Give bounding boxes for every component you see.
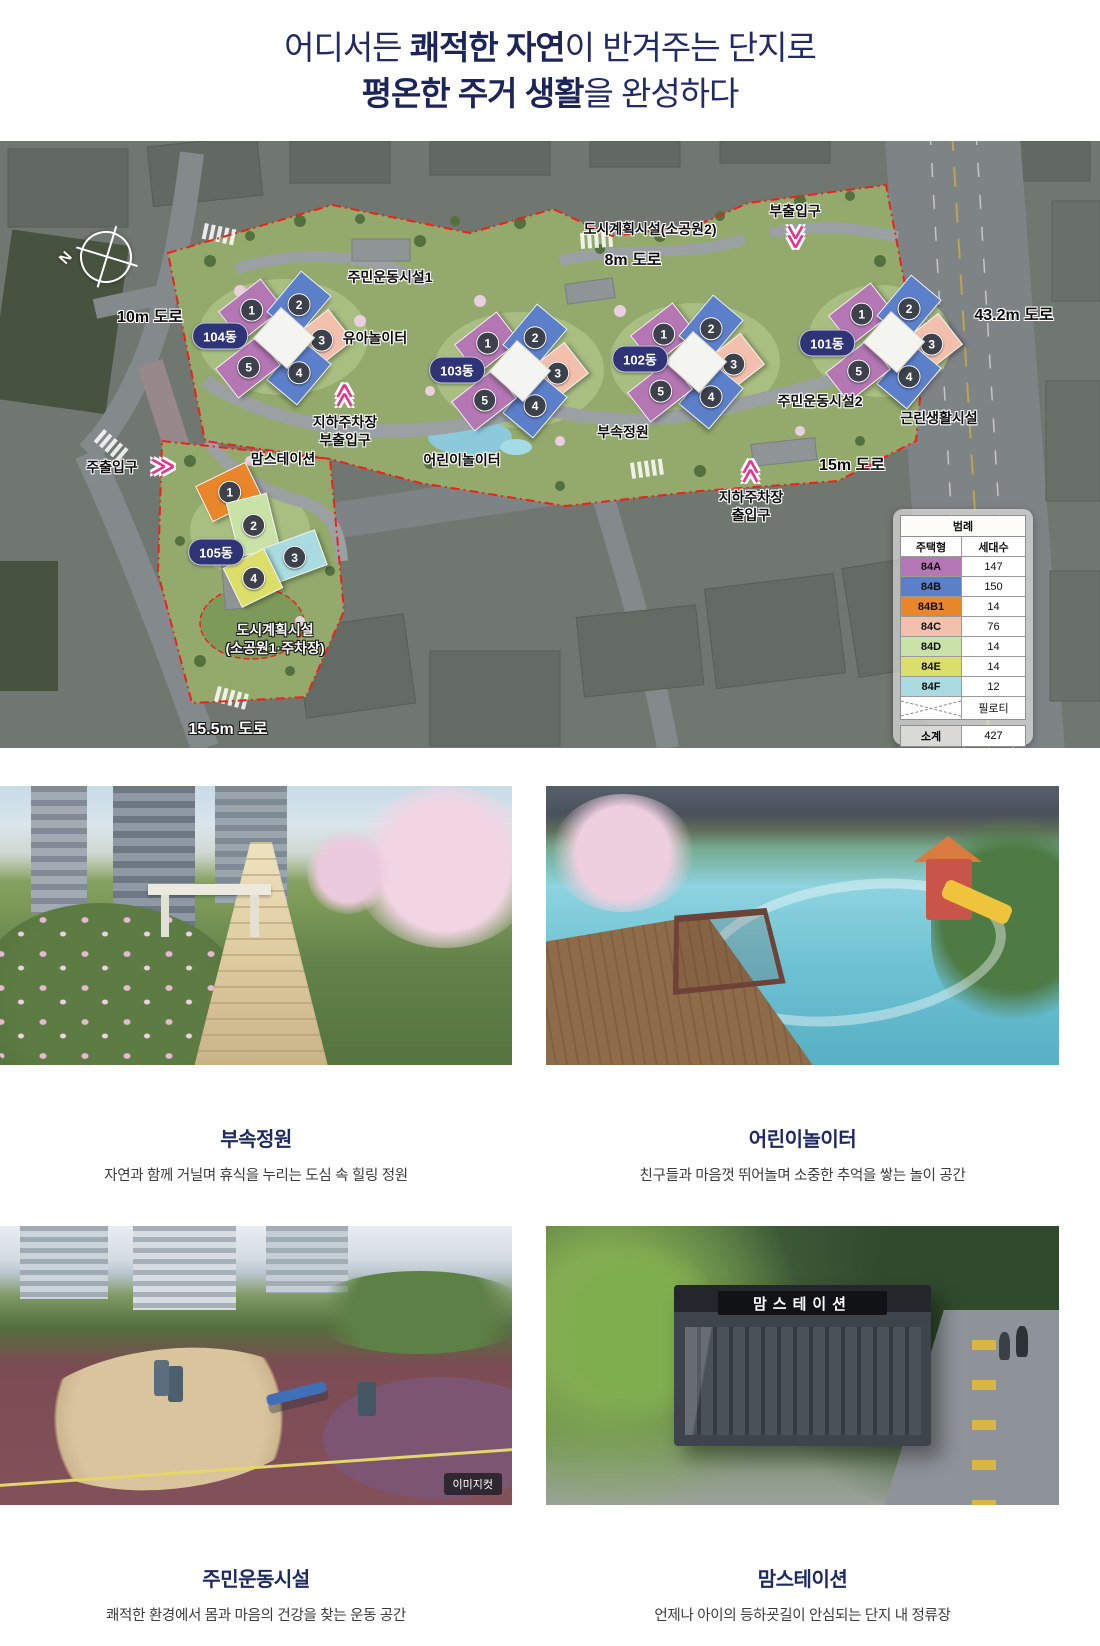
photo-garden (0, 786, 512, 1065)
kiosk-sign: 맘스테이션 (718, 1291, 887, 1315)
exercise-equipment (154, 1360, 169, 1396)
cards-row-2: 이미지컷 주민운동시설 쾌적한 환경에서 몸과 마음의 건강을 찾는 운동 공간… (0, 1226, 1100, 1625)
legend-col-count: 세대수 (962, 537, 1025, 556)
legend-subtotal-value: 427 (962, 726, 1025, 746)
building-silhouette (266, 1226, 348, 1293)
legend-swatch-84B1: 84B1 (901, 597, 962, 616)
label-parking-main-line1: 지하주차장 (719, 487, 783, 507)
legend-swatch-84A: 84A (901, 557, 962, 576)
kiosk-slats (685, 1327, 921, 1435)
label-momstation: 맘스테이션 (251, 449, 315, 469)
label-kids-playground: 유아놀이터 (343, 328, 407, 348)
legend-swatch-84C: 84C (901, 617, 962, 636)
pergola (148, 884, 271, 895)
label-sogongwon1-line2: (소공원1·주차장) (225, 638, 324, 658)
label-garden: 부속정원 (597, 422, 649, 442)
card-desc-garden: 자연과 함께 거닐며 휴식을 누리는 도심 속 힐링 정원 (0, 1164, 512, 1185)
legend-row-84F: 84F 12 (901, 677, 1025, 697)
label-sports-facility-1: 주민운동시설1 (347, 267, 432, 287)
building-pill-105: 105동 (188, 539, 244, 566)
cards-row-1: 부속정원 자연과 함께 거닐며 휴식을 누리는 도심 속 힐링 정원 어린이놀이… (0, 786, 1100, 1185)
page-title: 어디서든 쾌적한 자연이 반겨주는 단지로 평온한 주거 생활을 완성하다 (0, 0, 1100, 141)
label-sub-entrance: 부출입구 (769, 201, 821, 221)
legend-subtotal-label: 소계 (901, 726, 962, 746)
legend-count-84C: 76 (962, 617, 1025, 636)
main-entrance-arrow-icon (150, 455, 175, 479)
parking-sub-entrance-arrow-icon (332, 383, 357, 407)
label-parking-main-line2: 출입구 (732, 505, 771, 525)
building-silhouette (20, 1226, 107, 1299)
person-silhouette (1016, 1326, 1028, 1357)
card-title-children-playground: 어린이놀이터 (546, 1123, 1059, 1152)
legend-row-84C: 84C 76 (901, 617, 1025, 637)
legend-count-84A: 147 (962, 557, 1025, 576)
legend-row-84A: 84A 147 (901, 557, 1025, 577)
photo-exercise: 이미지컷 (0, 1226, 512, 1505)
legend-row-piloti: 필로티 (901, 697, 1025, 719)
label-neighborhood-facility: 근린생활시설 (900, 408, 977, 428)
building-silhouette (133, 1226, 235, 1310)
photo-cards: 부속정원 자연과 함께 거닐며 휴식을 누리는 도심 속 힐링 정원 어린이놀이… (0, 786, 1100, 1646)
legend-row-84B: 84B 150 (901, 577, 1025, 597)
parking-main-entrance-arrow-icon (738, 459, 763, 483)
card-caption: 맘스테이션 언제나 아이의 등하굣길이 안심되는 단지 내 정류장 (546, 1563, 1059, 1625)
piloti-swatch (901, 697, 962, 719)
title-line-1: 어디서든 쾌적한 자연이 반겨주는 단지로 (284, 27, 816, 68)
road-label-10m: 10m 도로 (117, 303, 183, 327)
label-parking-sub-line2: 부출입구 (319, 430, 371, 450)
legend-col-type: 주택형 (901, 537, 962, 556)
legend-swatch-84E: 84E (901, 657, 962, 676)
card-momstation: 맘스테이션 맘스테이션 언제나 아이의 등하굣길이 안심되는 단지 내 정류장 (546, 1226, 1059, 1625)
label-sogongwon2: 도시계획시설(소공원2) (583, 219, 716, 239)
pergola (673, 908, 786, 995)
label-sports-facility-2: 주민운동시설2 (777, 391, 862, 411)
legend-row-84B1: 84B1 14 (901, 597, 1025, 617)
card-caption: 어린이놀이터 친구들과 마음껏 뛰어놀며 소중한 추억을 쌓는 놀이 공간 (546, 1123, 1059, 1185)
legend-count-84E: 14 (962, 657, 1025, 676)
cherry-blossom-tree (551, 794, 695, 911)
site-plan: N 1 2 3 4 5 1 2 3 4 5 1 2 3 4 5 1 (0, 141, 1100, 748)
building-pill-104: 104동 (192, 323, 248, 350)
image-watermark-badge: 이미지컷 (444, 1473, 502, 1495)
card-caption: 주민운동시설 쾌적한 환경에서 몸과 마음의 건강을 찾는 운동 공간 (0, 1563, 512, 1625)
exercise-ground-circle (14, 1334, 324, 1504)
page: 어디서든 쾌적한 자연이 반겨주는 단지로 평온한 주거 생활을 완성하다 (0, 0, 1100, 1646)
road-label-43-2m: 43.2m 도로 (974, 301, 1053, 325)
card-desc-exercise: 쾌적한 환경에서 몸과 마음의 건강을 찾는 운동 공간 (0, 1604, 512, 1625)
road-label-15m: 15m 도로 (819, 451, 885, 475)
card-title-momstation: 맘스테이션 (546, 1563, 1059, 1592)
legend-header-row: 주택형 세대수 (901, 537, 1025, 557)
momstation-kiosk: 맘스테이션 (674, 1285, 931, 1447)
legend-row-84E: 84E 14 (901, 657, 1025, 677)
card-title-exercise: 주민운동시설 (0, 1563, 512, 1592)
label-children-playground: 어린이놀이터 (423, 450, 500, 470)
card-desc-momstation: 언제나 아이의 등하굣길이 안심되는 단지 내 정류장 (546, 1604, 1059, 1625)
legend-swatch-84B: 84B (901, 577, 962, 596)
person-silhouette (999, 1332, 1010, 1360)
building-pill-103: 103동 (429, 357, 485, 384)
legend-count-84F: 12 (962, 677, 1025, 696)
card-title-garden: 부속정원 (0, 1123, 512, 1152)
card-exercise: 이미지컷 주민운동시설 쾌적한 환경에서 몸과 마음의 건강을 찾는 운동 공간 (0, 1226, 512, 1625)
building-silhouette (31, 786, 87, 914)
legend-count-84D: 14 (962, 637, 1025, 656)
building-pill-102: 102동 (612, 346, 668, 373)
legend-table: 범례 주택형 세대수 84A 147 84B 150 84B1 14 (900, 515, 1026, 720)
photo-momstation: 맘스테이션 (546, 1226, 1059, 1505)
card-caption: 부속정원 자연과 함께 거닐며 휴식을 누리는 도심 속 힐링 정원 (0, 1123, 512, 1185)
label-main-entrance: 주출입구 (86, 457, 138, 477)
legend-piloti-label: 필로티 (962, 697, 1025, 719)
road-label-15-5m: 15.5m 도로 (188, 715, 267, 739)
legend-row-84D: 84D 14 (901, 637, 1025, 657)
cherry-blossom-tree (307, 831, 389, 915)
building-105: 1 2 3 4 (170, 471, 330, 601)
photo-children-playground (546, 786, 1059, 1065)
trees (307, 1271, 512, 1355)
label-sogongwon1-line1: 도시계획시설 (236, 620, 313, 640)
map-legend: 범례 주택형 세대수 84A 147 84B 150 84B1 14 (893, 509, 1033, 745)
label-parking-sub-line1: 지하주차장 (313, 412, 377, 432)
legend-swatch-84F: 84F (901, 677, 962, 696)
legend-count-84B: 150 (962, 577, 1025, 596)
road-label-8m: 8m 도로 (604, 246, 661, 270)
building-pill-101: 101동 (799, 330, 855, 357)
exercise-equipment (358, 1382, 375, 1415)
title-line-2: 평온한 주거 생활을 완성하다 (362, 73, 739, 114)
card-children-playground: 어린이놀이터 친구들과 마음껏 뛰어놀며 소중한 추억을 쌓는 놀이 공간 (546, 786, 1059, 1185)
legend-subtotal-row: 소계 427 (900, 725, 1026, 747)
legend-count-84B1: 14 (962, 597, 1025, 616)
card-desc-children-playground: 친구들과 마음껏 뛰어놀며 소중한 추억을 쌓는 놀이 공간 (546, 1164, 1059, 1185)
legend-title: 범례 (901, 516, 1025, 537)
card-garden: 부속정원 자연과 함께 거닐며 휴식을 누리는 도심 속 힐링 정원 (0, 786, 512, 1185)
legend-swatch-84D: 84D (901, 637, 962, 656)
sub-entrance-arrow-icon (782, 225, 807, 249)
